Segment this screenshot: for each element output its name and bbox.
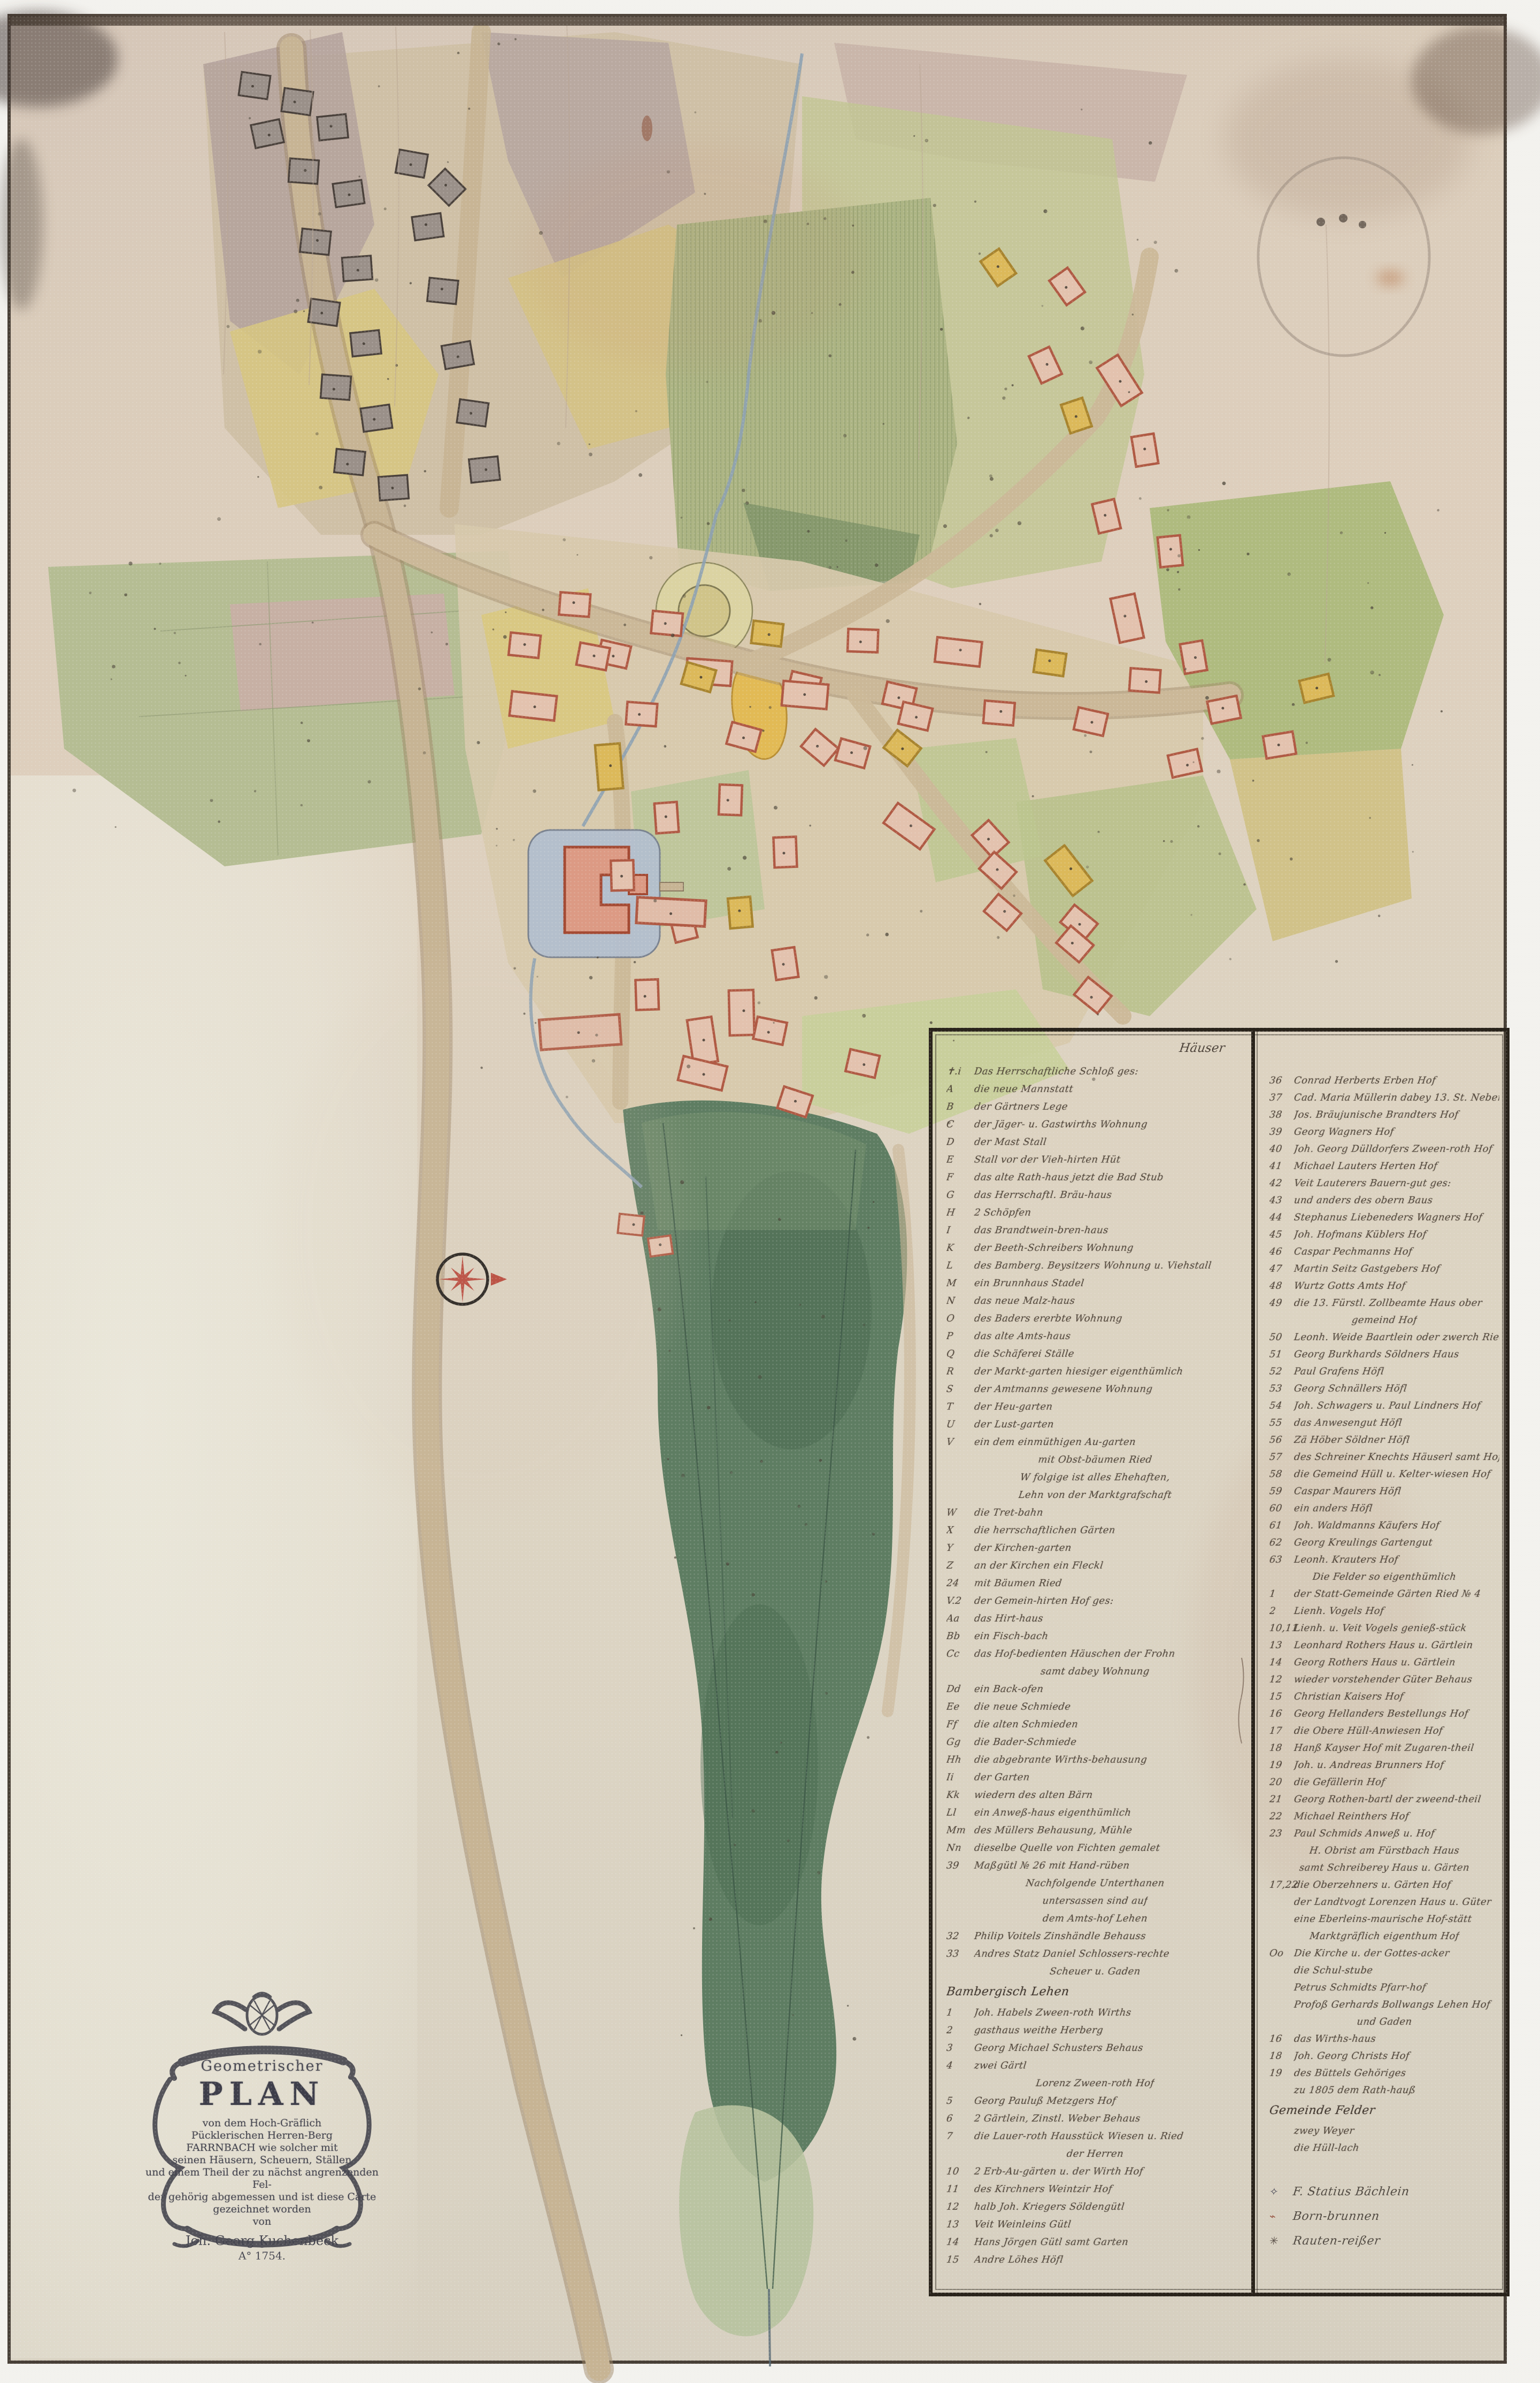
legend-row: 59Caspar Maurers Höfl: [1269, 1483, 1499, 1500]
legend-row-key: 54: [1269, 1397, 1295, 1415]
legend-row-key: Ff: [946, 1716, 975, 1733]
legend-row: Iider Garten: [946, 1769, 1244, 1786]
legend-row-key: 53: [1269, 1380, 1295, 1397]
legend-row: 18Joh. Georg Christs Hof: [1269, 2048, 1499, 2065]
legend-row-text: Joh. u. Andreas Brunners Hof: [1293, 1757, 1499, 1774]
legend-row: Kder Beeth-Schreibers Wohnung: [946, 1239, 1244, 1257]
legend-row-key: M: [946, 1274, 975, 1292]
legend-row-text: Das Herrschaftliche Schloß ges:: [973, 1063, 1244, 1080]
legend-row-key: 6: [946, 2110, 975, 2127]
legend-row-text: die Schul-stube: [1293, 1962, 1499, 1979]
legend-symbol-icon: ✳: [1269, 2234, 1293, 2247]
legend-row-text: Christian Kaisers Hof: [1293, 1688, 1499, 1705]
legend-row-text: die alten Schmieden: [973, 1716, 1244, 1733]
legend-row: 2Lienh. Vogels Hof: [1269, 1603, 1499, 1620]
legend-row-text: das neue Malz-haus: [973, 1292, 1244, 1310]
legend-row-text: Andres Statz Daniel Schlossers-rechte: [973, 1945, 1244, 1963]
legend-row-text: des Bamberg. Beysitzers Wohnung u. Viehs…: [973, 1257, 1244, 1274]
legend-row: 49die 13. Fürstl. Zollbeamte Haus ober: [1269, 1295, 1499, 1312]
legend-row-text: des Büttels Gehöriges: [1293, 2065, 1499, 2082]
legend-row: 4zwei Gärtl: [946, 2057, 1244, 2074]
legend-row-text: Joh. Waldmanns Käufers Hof: [1293, 1517, 1499, 1534]
legend-row-text: der Heu-garten: [973, 1398, 1244, 1416]
legend-note-row: Marktgräflich eigenthum Hof: [1269, 1928, 1499, 1945]
legend-note-row: samt Schreiberey Haus u. Gärten: [1269, 1859, 1499, 1877]
legend-row-key: 12: [1269, 1671, 1295, 1688]
legend-row-text: Michael Reinthers Hof: [1293, 1808, 1499, 1825]
legend-row-text: des Müllers Behausung, Mühle: [973, 1821, 1244, 1839]
legend-row-key: 13: [1269, 1637, 1295, 1654]
legend-row: Hhdie abgebrante Wirths-behausung: [946, 1751, 1244, 1769]
legend-row-key: C: [946, 1116, 975, 1133]
legend-row: Kkwiedern des alten Bärn: [946, 1786, 1244, 1804]
legend-row-key: [1269, 1979, 1295, 1996]
legend-row: 61Joh. Waldmanns Käufers Hof: [1269, 1517, 1499, 1534]
legend-row: 53Georg Schnällers Höfl: [1269, 1380, 1499, 1397]
legend-row: Idas Brandtwein-bren-haus: [946, 1221, 1244, 1239]
legend-note-row: gemeind Hof: [1269, 1312, 1499, 1329]
legend-row-text: Caspar Maurers Höfl: [1293, 1483, 1499, 1500]
legend-row: ✝.iDas Herrschaftliche Schloß ges:: [946, 1063, 1244, 1080]
legend-note-row: Lorenz Zween-roth Hof: [946, 2074, 1244, 2092]
legend-row: zu 1805 dem Rath-hauß: [1269, 2082, 1499, 2099]
legend-row-key: 5: [946, 2092, 975, 2110]
legend-row-text: Hans Jörgen Gütl samt Garten: [973, 2233, 1244, 2251]
legend-row-text: ein Brunnhaus Stadel: [973, 1274, 1244, 1292]
legend-row: 5Georg Pauluß Metzgers Hof: [946, 2092, 1244, 2110]
legend-section-header: Bambergisch Lehen: [946, 1980, 1244, 2004]
legend-row-key: O: [946, 1310, 975, 1327]
legend-row-text: zu 1805 dem Rath-hauß: [1293, 2082, 1499, 2099]
legend-row: 14Hans Jörgen Gütl samt Garten: [946, 2233, 1244, 2251]
legend-row-text: die Oberzehners u. Gärten Hof: [1293, 1877, 1499, 1894]
legend-row-text: die 13. Fürstl. Zollbeamte Haus ober: [1293, 1295, 1499, 1312]
legend-row-key: A: [946, 1080, 975, 1098]
legend-row-text: Conrad Herberts Erben Hof: [1293, 1072, 1499, 1089]
legend-row-key: 20: [1269, 1774, 1295, 1791]
legend-row-key: 57: [1269, 1449, 1295, 1466]
castle-and-moat: [528, 830, 683, 957]
legend-row-key: 45: [1269, 1226, 1295, 1243]
legend-row-key: V.2: [946, 1592, 975, 1610]
legend-row-text: der Statt-Gemeinde Gärten Ried № 4: [1293, 1586, 1499, 1603]
legend-row-text: der Gemein-hirten Hof ges:: [973, 1592, 1244, 1610]
legend-row: 47Martin Seitz Gastgebers Hof: [1269, 1260, 1499, 1278]
legend-row: Vein dem einmüthigen Au-garten: [946, 1433, 1244, 1451]
legend-row: Ffdie alten Schmieden: [946, 1716, 1244, 1733]
legend-row-text: die herrschaftlichen Gärten: [973, 1521, 1244, 1539]
legend-row-key: 1: [946, 2004, 975, 2021]
legend-row-key: F: [946, 1169, 975, 1186]
legend-row-key: Aa: [946, 1610, 975, 1627]
cartouche-line: der gehörig abgemessen und ist diese Car…: [135, 2191, 389, 2203]
legend-row: Gdas Herrschaftl. Bräu-haus: [946, 1186, 1244, 1204]
legend-row-text: und anders des obern Baus: [1293, 1192, 1499, 1209]
cartouche-text: Geometrischer PLAN von dem Hoch-Gräflich…: [135, 2058, 389, 2262]
legend-row-key: 44: [1269, 1209, 1295, 1226]
legend-row-text: die Obere Hüll-Anwiesen Hof: [1293, 1723, 1499, 1740]
legend-row-key: Z: [946, 1557, 975, 1574]
legend-row: 12halb Joh. Kriegers Söldengütl: [946, 2198, 1244, 2216]
legend-row: 41Michael Lauters Herten Hof: [1269, 1158, 1499, 1175]
legend-row: 3Georg Michael Schusters Behaus: [946, 2039, 1244, 2057]
legend-row: OoDie Kirche u. der Gottes-acker: [1269, 1945, 1499, 1962]
legend-row: Ddein Back-ofen: [946, 1680, 1244, 1698]
legend-row-key: 47: [1269, 1260, 1295, 1278]
legend-row-key: 14: [1269, 1654, 1295, 1671]
legend-row: Wdie Tret-bahn: [946, 1504, 1244, 1521]
legend-row-key: 32: [946, 1927, 975, 1945]
legend-row-key: W: [946, 1504, 975, 1521]
legend-row-key: 21: [1269, 1791, 1295, 1808]
legend-row-text: Georg Schnällers Höfl: [1293, 1380, 1499, 1397]
legend-row-key: 63: [1269, 1551, 1295, 1569]
legend-row-text: Cad. Maria Müllerin dabey 13. St. Nebenb…: [1293, 1089, 1499, 1106]
legend-row: 46Caspar Pechmanns Hof: [1269, 1243, 1499, 1260]
legend-row-text: Georg Rothers Haus u. Gärtlein: [1293, 1654, 1499, 1671]
legend-symbol-text: F. Statius Bächlein: [1292, 2185, 1410, 2198]
legend-row-text: Georg Hellanders Bestellungs Hof: [1293, 1705, 1499, 1723]
legend-row-key: 14: [946, 2233, 975, 2251]
legend-row-text: Lienh. u. Veit Vogels genieß-stück: [1293, 1620, 1499, 1637]
legend-row-key: Ii: [946, 1769, 975, 1786]
legend-row-key: Dd: [946, 1680, 975, 1698]
legend-row-text: der Amtmanns gewesene Wohnung: [973, 1380, 1244, 1398]
legend-row: Bder Gärtners Lege: [946, 1098, 1244, 1116]
legend-row-key: 19: [1269, 2065, 1295, 2082]
legend-row: 23Paul Schmids Anweß u. Hof: [1269, 1825, 1499, 1842]
legend-row: 43und anders des obern Baus: [1269, 1192, 1499, 1209]
legend-row-key: 7: [946, 2127, 975, 2145]
legend-row-text: des Kirchners Weintzir Hof: [973, 2180, 1244, 2198]
legend-table: Häuser ✝.iDas Herrschaftliche Schloß ges…: [929, 1028, 1510, 2296]
legend-row-text: Joh. Schwagers u. Paul Lindners Hof: [1293, 1397, 1499, 1415]
title-cartouche: Geometrischer PLAN von dem Hoch-Gräflich…: [135, 1978, 389, 2261]
legend-row: Pdas alte Amts-haus: [946, 1327, 1244, 1345]
legend-row-text: Michael Lauters Herten Hof: [1293, 1158, 1499, 1175]
legend-row: Petrus Schmidts Pfarr-hof: [1269, 1979, 1499, 1996]
cartouche-line: FARRNBACH wie solcher mit: [135, 2142, 389, 2154]
legend-row: 60ein anders Höfl: [1269, 1500, 1499, 1517]
legend-row: 15Andre Löhes Höfl: [946, 2251, 1244, 2269]
cartouche-line: von dem Hoch-Gräflich: [135, 2117, 389, 2130]
legend-row: 32Philip Voitels Zinshändle Behauss: [946, 1927, 1244, 1945]
cartouche-line: seinen Häusern, Scheuern, Ställen: [135, 2154, 389, 2166]
legend-row-text: Lienh. Vogels Hof: [1293, 1603, 1499, 1620]
legend-row-text: das alte Amts-haus: [973, 1327, 1244, 1345]
legend-column-1: Häuser ✝.iDas Herrschaftliche Schloß ges…: [946, 1038, 1244, 2287]
legend-row-key: U: [946, 1416, 975, 1433]
legend-row: Tder Heu-garten: [946, 1398, 1244, 1416]
legend-row: V.2der Gemein-hirten Hof ges:: [946, 1592, 1244, 1610]
legend-row-key: 3: [946, 2039, 975, 2057]
legend-row-text: das Herrschaftl. Bräu-haus: [973, 1186, 1244, 1204]
legend-row-text: Petrus Schmidts Pfarr-hof: [1293, 1979, 1499, 1996]
legend-row: 39Georg Wagners Hof: [1269, 1124, 1499, 1141]
legend-row-key: 19: [1269, 1757, 1295, 1774]
legend-row: der Landtvogt Lorenzen Haus u. Güter: [1269, 1894, 1499, 1911]
legend-row-text: Joh. Georg Christs Hof: [1293, 2048, 1499, 2065]
cartouche-line: Pücklerischen Herren-Berg: [135, 2130, 389, 2142]
legend-note-row: Scheuer u. Gaden: [946, 1963, 1244, 1980]
legend-row: 42Veit Lauterers Bauern-gut ges:: [1269, 1175, 1499, 1192]
legend-row: Mein Brunnhaus Stadel: [946, 1274, 1244, 1292]
legend-row-text: Maßgütl № 26 mit Hand-rüben: [973, 1857, 1244, 1874]
legend-row: 33Andres Statz Daniel Schlossers-rechte: [946, 1945, 1244, 1963]
legend-section-header: Gemeinde Felder: [1269, 2099, 1499, 2123]
legend-row-key: 22: [1269, 1808, 1295, 1825]
legend-row-key: 49: [1269, 1295, 1295, 1312]
legend-note-row: und Gaden: [1269, 2013, 1499, 2031]
legend-row-text: Leonh. Weide Baartlein oder zwerch Ried: [1293, 1329, 1499, 1346]
legend-row-key: 15: [946, 2251, 975, 2269]
legend-row: Rder Markt-garten hiesiger eigenthümlich: [946, 1363, 1244, 1380]
legend-row-text: an der Kirchen ein Fleckl: [973, 1557, 1244, 1574]
legend-row-text: gasthaus weithe Herberg: [973, 2021, 1244, 2039]
legend-row-key: 2: [946, 2021, 975, 2039]
legend-row-key: 55: [1269, 1415, 1295, 1432]
legend-row-text: die Bader-Schmiede: [973, 1733, 1244, 1751]
legend-row-key: I: [946, 1221, 975, 1239]
legend-row: 1Joh. Habels Zween-roth Wirths: [946, 2004, 1244, 2021]
legend-row-text: ein anders Höfl: [1293, 1500, 1499, 1517]
legend-row: 45Joh. Hofmans Küblers Hof: [1269, 1226, 1499, 1243]
legend-row-key: X: [946, 1521, 975, 1539]
legend-row-key: 1: [1269, 1586, 1295, 1603]
legend-row-key: 16: [1269, 2031, 1295, 2048]
legend-row-key: Gg: [946, 1733, 975, 1751]
legend-row-text: Veit Weinleins Gütl: [973, 2216, 1244, 2233]
legend-note-row: untersassen sind auf: [946, 1892, 1244, 1910]
legend-row: eine Eberleins-maurische Hof-stätt: [1269, 1911, 1499, 1928]
legend-row: Ggdie Bader-Schmiede: [946, 1733, 1244, 1751]
legend-row: 38Jos. Bräujunische Brandters Hof: [1269, 1106, 1499, 1124]
legend-row-text: Joh. Hofmans Küblers Hof: [1293, 1226, 1499, 1243]
legend-row: Adie neue Mannstatt: [946, 1080, 1244, 1098]
legend-row: 7die Lauer-roth Hausstück Wiesen u. Ried: [946, 2127, 1244, 2145]
legend-row-text: Die Kirche u. der Gottes-acker: [1293, 1945, 1499, 1962]
legend-row-key: 11: [946, 2180, 975, 2198]
legend-row-text: 2 Schöpfen: [973, 1204, 1244, 1221]
legend-row-text: die abgebrante Wirths-behausung: [973, 1751, 1244, 1769]
legend-row: Ndas neue Malz-haus: [946, 1292, 1244, 1310]
legend-row-key: 17: [1269, 1723, 1295, 1740]
legend-row-text: Jos. Bräujunische Brandters Hof: [1293, 1106, 1499, 1124]
legend-row-key: E: [946, 1151, 975, 1169]
legend-row: 10,11Lienh. u. Veit Vogels genieß-stück: [1269, 1620, 1499, 1637]
legend-row-key: 37: [1269, 1089, 1295, 1106]
legend-row: Uder Lust-garten: [946, 1416, 1244, 1433]
legend-note-row: H. Obrist am Fürstbach Haus: [1269, 1842, 1499, 1859]
legend-row: die Schul-stube: [1269, 1962, 1499, 1979]
legend-row-text: der Jäger- u. Gastwirths Wohnung: [973, 1116, 1244, 1133]
legend-row-text: 2 Gärtlein, Zinstl. Weber Behaus: [973, 2110, 1244, 2127]
legend-row: Nndieselbe Quelle von Fichten gemalet: [946, 1839, 1244, 1857]
legend-row-text: das Anwesengut Höfl: [1293, 1415, 1499, 1432]
legend-row-key: ✝.i: [946, 1063, 975, 1080]
legend-row-text: Georg Michael Schusters Behaus: [973, 2039, 1244, 2057]
legend-row: Aadas Hirt-haus: [946, 1610, 1244, 1627]
legend-row: Ldes Bamberg. Beysitzers Wohnung u. Vieh…: [946, 1257, 1244, 1274]
legend-row-text: der Mast Stall: [973, 1133, 1244, 1151]
legend-row-key: K: [946, 1239, 975, 1257]
legend-row-key: V: [946, 1433, 975, 1451]
legend-row: 20die Gefällerin Hof: [1269, 1774, 1499, 1791]
legend-row-key: 40: [1269, 1141, 1295, 1158]
legend-row-key: G: [946, 1186, 975, 1204]
legend-row-key: 12: [946, 2198, 975, 2216]
legend-row: Yder Kirchen-garten: [946, 1539, 1244, 1557]
legend-row-text: Veit Lauterers Bauern-gut ges:: [1293, 1175, 1499, 1192]
legend-row-key: 58: [1269, 1466, 1295, 1483]
legend-row: zwey Weyer: [1269, 2123, 1499, 2140]
legend-row: Fdas alte Rath-haus jetzt die Bad Stub: [946, 1169, 1244, 1186]
legend-row-text: Paul Schmids Anweß u. Hof: [1293, 1825, 1499, 1842]
legend-symbol-text: Born-brunnen: [1292, 2210, 1380, 2223]
legend-row-key: [1269, 1996, 1295, 2013]
map-title: PLAN: [135, 2075, 389, 2113]
legend-row-key: S: [946, 1380, 975, 1398]
legend-row: 19Joh. u. Andreas Brunners Hof: [1269, 1757, 1499, 1774]
legend-note-row: Lehn von der Marktgrafschaft: [946, 1486, 1244, 1504]
legend-row-text: eine Eberleins-maurische Hof-stätt: [1293, 1911, 1499, 1928]
legend-row: Dder Mast Stall: [946, 1133, 1244, 1151]
legend-row: 57des Schreiner Knechts Häuserl samt Hof: [1269, 1449, 1499, 1466]
legend-row-text: das Brandtwein-bren-haus: [973, 1221, 1244, 1239]
legend-row-key: 2: [1269, 1603, 1295, 1620]
legend-row: 17,22die Oberzehners u. Gärten Hof: [1269, 1877, 1499, 1894]
legend-row-key: 48: [1269, 1278, 1295, 1295]
legend-row: 11des Kirchners Weintzir Hof: [946, 2180, 1244, 2198]
legend-row: 44Stephanus Liebeneders Wagners Hof: [1269, 1209, 1499, 1226]
cartouche-kicker: Geometrischer: [135, 2058, 389, 2074]
legend-row-text: ein dem einmüthigen Au-garten: [973, 1433, 1244, 1451]
legend-row-key: R: [946, 1363, 975, 1380]
legend-row: 37Cad. Maria Müllerin dabey 13. St. Nebe…: [1269, 1089, 1499, 1106]
legend-row: Xdie herrschaftlichen Gärten: [946, 1521, 1244, 1539]
legend-row-text: zwei Gärtl: [973, 2057, 1244, 2074]
legend-row-text: halb Joh. Kriegers Söldengütl: [973, 2198, 1244, 2216]
legend-row: 17die Obere Hüll-Anwiesen Hof: [1269, 1723, 1499, 1740]
legend-row-key: 60: [1269, 1500, 1295, 1517]
legend-row: 1der Statt-Gemeinde Gärten Ried № 4: [1269, 1586, 1499, 1603]
legend-row: Cder Jäger- u. Gastwirths Wohnung: [946, 1116, 1244, 1133]
legend-row-text: ein Fisch-bach: [973, 1627, 1244, 1645]
legend-symbol-icon: ⌁: [1269, 2210, 1293, 2223]
legend-row: 21Georg Rothen-bartl der zweend-theil: [1269, 1791, 1499, 1808]
legend-row-text: Andre Löhes Höfl: [973, 2251, 1244, 2269]
legend-row-text: Georg Rothen-bartl der zweend-theil: [1293, 1791, 1499, 1808]
legend-row-text: 2 Erb-Au-gärten u. der Wirth Hof: [973, 2163, 1244, 2180]
legend-row: 62Georg Kreulings Gartengut: [1269, 1534, 1499, 1551]
legend-row: 39Maßgütl № 26 mit Hand-rüben: [946, 1857, 1244, 1874]
cartouche-year: A° 1754.: [135, 2249, 389, 2262]
legend-row-key: P: [946, 1327, 975, 1345]
legend-row: H2 Schöpfen: [946, 1204, 1244, 1221]
legend-row-key: 15: [1269, 1688, 1295, 1705]
legend-row-key: N: [946, 1292, 975, 1310]
legend-row-text: die Tret-bahn: [973, 1504, 1244, 1521]
legend-row-key: Ll: [946, 1804, 975, 1821]
legend-row-key: 18: [1269, 1740, 1295, 1757]
legend-row-text: Paul Grafens Höfl: [1293, 1363, 1499, 1380]
legend-row-text: die Lauer-roth Hausstück Wiesen u. Ried: [973, 2127, 1244, 2145]
legend-header-haeuser: Häuser: [946, 1038, 1244, 1063]
legend-note-row: dem Amts-hof Lehen: [946, 1910, 1244, 1927]
legend-row-key: 46: [1269, 1243, 1295, 1260]
legend-row-text: des Schreiner Knechts Häuserl samt Hof: [1293, 1449, 1499, 1466]
legend-row-text: mit Bäumen Ried: [973, 1574, 1244, 1592]
legend-row-text: dieselbe Quelle von Fichten gemalet: [973, 1839, 1244, 1857]
legend-column-2: 36Conrad Herberts Erben Hof37Cad. Maria …: [1269, 1038, 1499, 2287]
legend-row: 12wieder vorstehender Güter Behaus: [1269, 1671, 1499, 1688]
legend-row: Odes Baders ererbte Wohnung: [946, 1310, 1244, 1327]
legend-note-row: der Herren: [946, 2145, 1244, 2163]
legend-row-key: 61: [1269, 1517, 1295, 1534]
legend-row-text: die Hüll-lach: [1293, 2140, 1499, 2157]
legend-row-text: die Gemeind Hüll u. Kelter-wiesen Hof: [1293, 1466, 1499, 1483]
cartouche-lines: von dem Hoch-GräflichPücklerischen Herre…: [135, 2117, 389, 2228]
legend-row-key: 23: [1269, 1825, 1295, 1842]
legend-row-key: 38: [1269, 1106, 1295, 1124]
legend-row-text: Georg Pauluß Metzgers Hof: [973, 2092, 1244, 2110]
legend-row-text: Leonh. Krauters Hof: [1293, 1551, 1499, 1569]
legend-row: 50Leonh. Weide Baartlein oder zwerch Rie…: [1269, 1329, 1499, 1346]
legend-note-row: samt dabey Wohnung: [946, 1663, 1244, 1680]
legend-symbol-icon: ✧: [1269, 2185, 1293, 2198]
cartouche-line: von: [135, 2216, 389, 2228]
legend-row-text: das alte Rath-haus jetzt die Bad Stub: [973, 1169, 1244, 1186]
legend-row-key: [1269, 1894, 1295, 1911]
legend-row: 14Georg Rothers Haus u. Gärtlein: [1269, 1654, 1499, 1671]
legend-col2-top-space: [1269, 1038, 1499, 1072]
legend-note-row: W folgige ist alles Ehehaften,: [946, 1469, 1244, 1486]
legend-row-text: Profoß Gerhards Bollwangs Lehen Hof: [1293, 1996, 1499, 2013]
legend-row-key: 4: [946, 2057, 975, 2074]
legend-row: 48Wurtz Gotts Amts Hof: [1269, 1278, 1499, 1295]
legend-row-text: der Landtvogt Lorenzen Haus u. Güter: [1293, 1894, 1499, 1911]
legend-row: 58die Gemeind Hüll u. Kelter-wiesen Hof: [1269, 1466, 1499, 1483]
legend-note-row: Die Felder so eigenthümlich: [1269, 1569, 1499, 1586]
legend-column-divider: [1251, 1032, 1255, 2293]
legend-row: 52Paul Grafens Höfl: [1269, 1363, 1499, 1380]
legend-row-text: Philip Voitels Zinshändle Behauss: [973, 1927, 1244, 1945]
legend-row-text: ein Back-ofen: [973, 1680, 1244, 1698]
legend-symbol-row: ⌁Born-brunnen: [1269, 2204, 1499, 2228]
legend-row: 16Georg Hellanders Bestellungs Hof: [1269, 1705, 1499, 1723]
legend-row-text: das Wirths-haus: [1293, 2031, 1499, 2048]
legend-row-key: 52: [1269, 1363, 1295, 1380]
legend-row-text: Zä Höber Söldner Höfl: [1293, 1432, 1499, 1449]
legend-row-key: Cc: [946, 1645, 975, 1663]
legend-row-text: der Beeth-Schreibers Wohnung: [973, 1239, 1244, 1257]
legend-symbol-block: ✧F. Statius Bächlein⌁Born-brunnen✳Rauten…: [1269, 2179, 1499, 2253]
legend-row-key: Kk: [946, 1786, 975, 1804]
legend-row: 102 Erb-Au-gärten u. der Wirth Hof: [946, 2163, 1244, 2180]
legend-row-key: B: [946, 1098, 975, 1116]
legend-row-key: 42: [1269, 1175, 1295, 1192]
legend-row: Sder Amtmanns gewesene Wohnung: [946, 1380, 1244, 1398]
photo-of-historic-map: Häuser ✝.iDas Herrschaftliche Schloß ges…: [0, 0, 1540, 2383]
legend-row: Mmdes Müllers Behausung, Mühle: [946, 1821, 1244, 1839]
legend-row: 15Christian Kaisers Hof: [1269, 1688, 1499, 1705]
cartouche-author: Joh. Georg Kuchenbeck: [135, 2233, 389, 2248]
legend-row: 51Georg Burkhards Söldners Haus: [1269, 1346, 1499, 1363]
legend-row-text: das Hirt-haus: [973, 1610, 1244, 1627]
legend-row-text: Stephanus Liebeneders Wagners Hof: [1293, 1209, 1499, 1226]
legend-row-text: Stall vor der Vieh-hirten Hüt: [973, 1151, 1244, 1169]
legend-row-key: 24: [946, 1574, 975, 1592]
